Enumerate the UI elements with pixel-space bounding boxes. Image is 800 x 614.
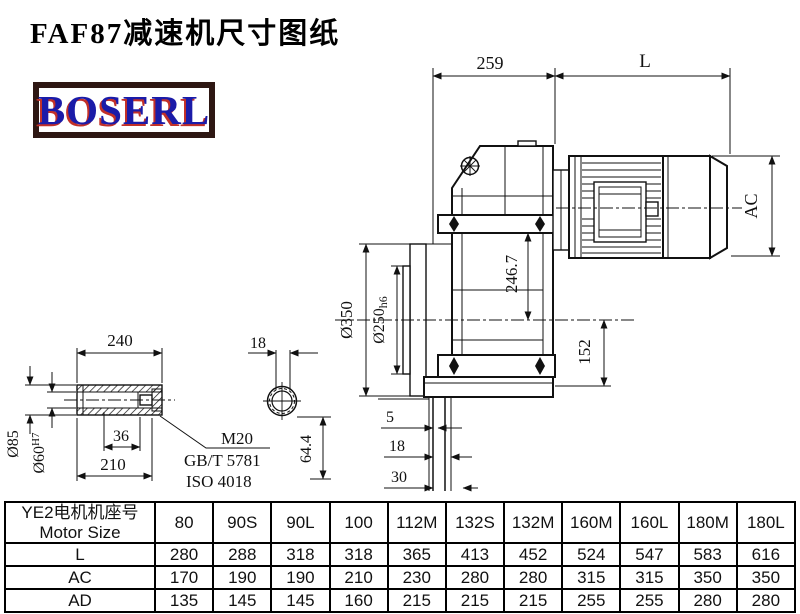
column-header-160M: 160M	[562, 502, 620, 543]
row-label-AD: AD	[5, 589, 155, 612]
value-cell: 210	[330, 566, 388, 589]
value-cell: 215	[446, 589, 504, 612]
table-header-en: Motor Size	[6, 523, 154, 543]
output-shaft-view: 240 36 210 Ø85 Ø60H7 M20 GB/T 5781 ISO 4…	[5, 331, 270, 491]
motor-stator-box	[594, 182, 646, 242]
table-row-AD: AD135145145160215215215255255280280	[5, 589, 795, 612]
thread-leader-line	[160, 416, 270, 448]
row-label-AC: AC	[5, 566, 155, 589]
dim-240-label: 240	[107, 331, 133, 350]
value-cell: 318	[330, 543, 388, 566]
dim-18-label: 18	[389, 438, 405, 455]
value-cell: 280	[737, 589, 795, 612]
dim-36-label: 36	[113, 428, 129, 445]
column-header-180M: 180M	[679, 502, 737, 543]
value-cell: 318	[271, 543, 329, 566]
dim-250h6-label: Ø250h6	[371, 296, 390, 344]
table-row-AC: AC170190190210230280280315315350350	[5, 566, 795, 589]
value-cell: 255	[620, 589, 678, 612]
value-cell: 288	[213, 543, 271, 566]
value-cell: 280	[155, 543, 213, 566]
value-cell: 230	[388, 566, 446, 589]
value-cell: 365	[388, 543, 446, 566]
dim-259-label: 259	[477, 53, 504, 73]
column-header-132S: 132S	[446, 502, 504, 543]
standard-iso-label: ISO 4018	[186, 472, 252, 491]
column-header-100: 100	[330, 502, 388, 543]
dim-AC-label: AC	[741, 193, 761, 218]
shaft-end-view: 18	[248, 335, 318, 420]
column-header-180L: 180L	[737, 502, 795, 543]
value-cell: 616	[737, 543, 795, 566]
dim-60H7-label: Ø60H7	[30, 432, 48, 474]
value-cell: 524	[562, 543, 620, 566]
value-cell: 315	[620, 566, 678, 589]
value-cell: 280	[504, 566, 562, 589]
value-cell: 190	[271, 566, 329, 589]
value-cell: 315	[562, 566, 620, 589]
column-header-132M: 132M	[504, 502, 562, 543]
dim-246-label: 246.7	[502, 254, 521, 293]
dim-64-label: 64.4	[298, 435, 315, 463]
column-header-112M: 112M	[388, 502, 446, 543]
column-header-80: 80	[155, 502, 213, 543]
column-header-90L: 90L	[271, 502, 329, 543]
dim-85-label: Ø85	[5, 430, 22, 458]
table-header-cn: YE2电机机座号	[6, 503, 154, 523]
value-cell: 583	[679, 543, 737, 566]
value-cell: 190	[213, 566, 271, 589]
value-cell: 350	[679, 566, 737, 589]
column-header-160L: 160L	[620, 502, 678, 543]
value-cell: 452	[504, 543, 562, 566]
value-cell: 413	[446, 543, 504, 566]
motor-fan-cowl	[663, 156, 710, 258]
value-cell: 160	[330, 589, 388, 612]
dim-30-label: 30	[391, 469, 407, 486]
value-cell: 215	[504, 589, 562, 612]
value-cell: 280	[679, 589, 737, 612]
motor	[553, 156, 742, 258]
value-cell: 135	[155, 589, 213, 612]
value-cell: 215	[388, 589, 446, 612]
value-cell: 170	[155, 566, 213, 589]
standard-gb-label: GB/T 5781	[184, 451, 261, 470]
dim-210-label: 210	[100, 455, 126, 474]
value-cell: 547	[620, 543, 678, 566]
dim-L-label: L	[639, 51, 651, 72]
motor-size-table: YE2电机机座号 Motor Size 8090S90L100112M132S1…	[4, 501, 796, 613]
table-header-motor-size: YE2电机机座号 Motor Size	[5, 502, 155, 543]
value-cell: 145	[213, 589, 271, 612]
column-header-90S: 90S	[213, 502, 271, 543]
drawing-page: { "page": { "title": "FAF87减速机尺寸图纸", "lo…	[0, 0, 800, 614]
value-cell: 255	[562, 589, 620, 612]
dim-152-label: 152	[575, 339, 594, 365]
row-label-L: L	[5, 543, 155, 566]
value-cell: 145	[271, 589, 329, 612]
value-cell: 280	[446, 566, 504, 589]
thread-spec-label: M20	[221, 429, 253, 448]
table-row-L: L280288318318365413452524547583616	[5, 543, 795, 566]
dim-slot18-label: 18	[250, 335, 266, 352]
dim-5-label: 5	[386, 409, 394, 426]
dimension-drawing: 259 L AC 246.7 152 Ø350 Ø250h6 5 18 30 6…	[0, 0, 800, 502]
value-cell: 350	[737, 566, 795, 589]
dim-350-label: Ø350	[337, 301, 356, 339]
